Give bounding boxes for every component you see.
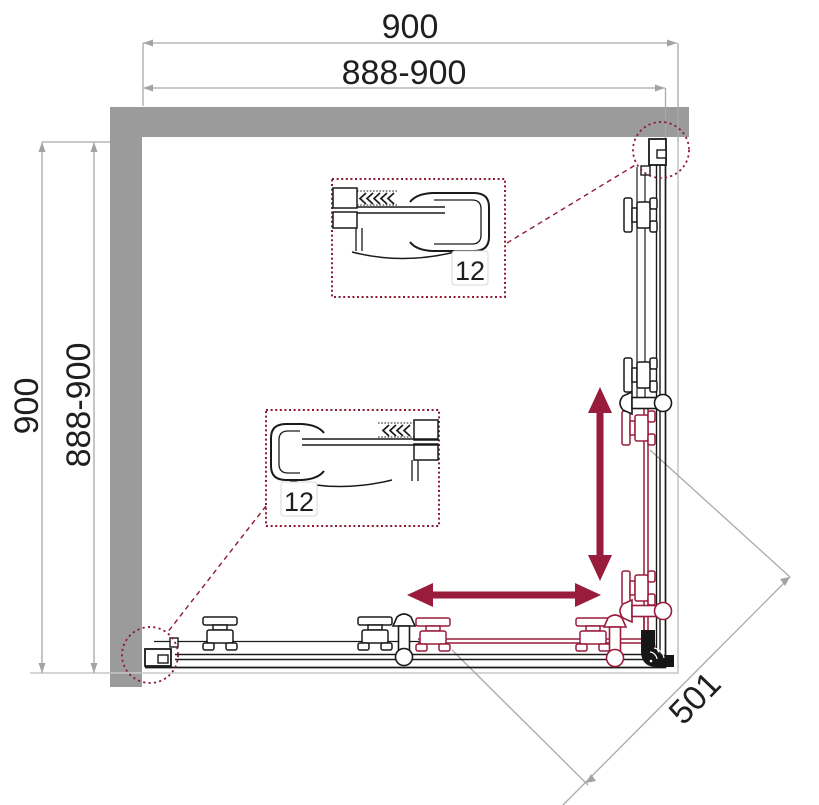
shower-enclosure-plan: 900 888-900 900 888-900 501 xyxy=(0,0,819,805)
dim-left-adjustable: 888-900 xyxy=(60,343,98,468)
dim-top-adjustable: 888-900 xyxy=(342,54,467,92)
dim-top-overall: 900 xyxy=(382,8,439,46)
slide-arrow-vertical xyxy=(588,387,612,581)
seal-hatch xyxy=(360,193,394,204)
seal-hatch xyxy=(383,425,410,436)
technical-drawing-page: 900 888-900 900 888-900 501 xyxy=(0,0,819,805)
roller-icon xyxy=(416,618,450,651)
roller-icon xyxy=(622,571,655,605)
roller-icon xyxy=(576,618,610,651)
detail-section-top xyxy=(333,188,489,259)
callout-leader-bottom xyxy=(167,506,266,633)
handle-knob-icon xyxy=(604,615,626,667)
handle-knob-icon xyxy=(620,600,672,622)
roller-icon xyxy=(358,617,392,650)
callout-leader-top xyxy=(507,164,637,243)
dim-left-overall: 900 xyxy=(8,378,46,435)
slide-arrow-horizontal xyxy=(407,583,601,607)
sliding-doors xyxy=(418,406,648,643)
detail-section-bottom xyxy=(271,420,438,487)
roller-icon xyxy=(622,411,655,445)
dim-diagonal-entry: 501 xyxy=(662,665,729,732)
handle-knob-icon xyxy=(393,614,415,666)
roller-icon xyxy=(624,198,657,232)
left-wall xyxy=(110,107,142,687)
corner-bracket xyxy=(641,630,674,667)
roller-icon xyxy=(624,358,657,392)
detail-thickness-bottom: 12 xyxy=(284,487,314,517)
roller-icon xyxy=(203,617,237,650)
detail-thickness-top: 12 xyxy=(455,256,485,286)
top-wall xyxy=(110,107,689,137)
handle-knob-icon xyxy=(620,392,672,414)
